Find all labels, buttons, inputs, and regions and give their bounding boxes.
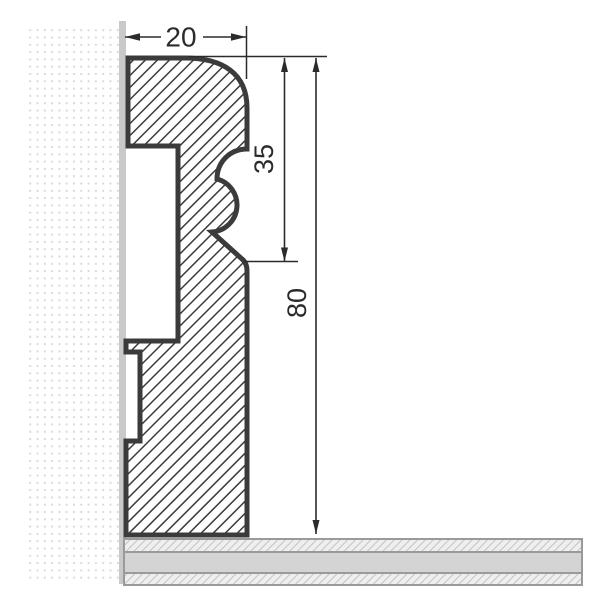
skirting-board-cross-section-drawing: 20 35 80: [0, 0, 604, 604]
floor-layer-middle: [124, 552, 582, 573]
profile-height-dimension: 35: [249, 58, 288, 262]
technical-drawing-page: 20 35 80: [0, 0, 604, 604]
total-height-dimension-label: 80: [282, 288, 312, 318]
floor-section: [124, 539, 582, 585]
total-height-dimension: 80: [282, 58, 320, 534]
wall-stipple-texture: [26, 25, 119, 582]
floor-layer-top: [124, 539, 582, 552]
wall: [26, 21, 126, 584]
arrowhead-up-icon: [313, 58, 320, 72]
floor-layer-bottom: [124, 573, 582, 585]
arrowhead-down-icon: [281, 248, 288, 262]
arrowhead-up-icon: [281, 58, 288, 72]
arrowhead-right-icon: [231, 33, 246, 41]
arrowhead-left-icon: [125, 33, 140, 41]
width-dimension-label: 20: [165, 22, 196, 53]
arrowhead-down-icon: [313, 520, 320, 534]
width-dimension: 20: [125, 22, 246, 53]
skirting-profile-section: [126, 58, 247, 535]
profile-height-dimension-label: 35: [249, 144, 279, 174]
